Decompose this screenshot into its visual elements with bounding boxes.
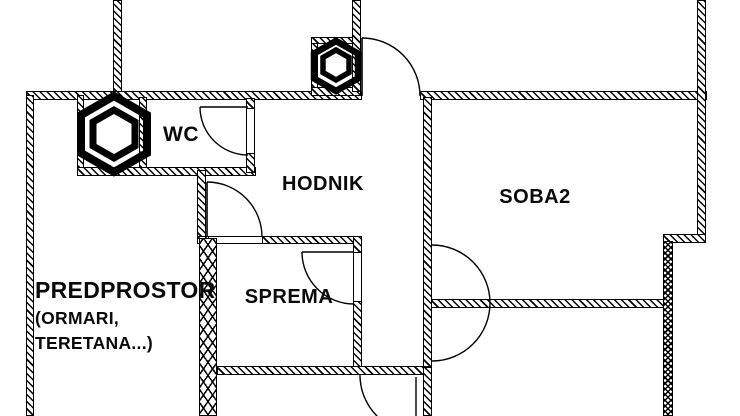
wall-topbox-left: [311, 37, 318, 92]
wall-right-exterior-upper: [697, 0, 706, 242]
wall-shaftbox-divider: [139, 97, 147, 173]
wall-top-left-vertical: [113, 0, 122, 96]
wall-sprema-right-upper: [353, 236, 362, 253]
wall-corridor-right: [423, 97, 432, 367]
sprema-right-door-opening: [353, 253, 362, 301]
wall-wc-right-lower: [246, 153, 255, 173]
predprostor-note-line1: (ORMARI,: [35, 306, 216, 331]
wall-sprema-bottom: [217, 366, 428, 375]
wall-corridor-right-bottom: [423, 367, 432, 416]
floor-plan: WC HODNIK SOBA2 SPREMA PREDPROSTOR (ORMA…: [0, 0, 740, 416]
room-label-soba2: SOBA2: [475, 186, 595, 209]
wall-shaftbox-left: [77, 95, 84, 173]
door-arc-bottom: [360, 375, 418, 416]
wall-wc-bottom: [77, 167, 256, 176]
wall-left-exterior: [26, 95, 34, 416]
wall-hodnik-left: [197, 170, 206, 240]
predprostor-title: PREDPROSTOR: [35, 278, 216, 303]
predprostor-note-line2: TERETANA...): [35, 331, 216, 356]
room-label-hodnik: HODNIK: [263, 173, 383, 196]
hexagon-shaft-icon-large: [81, 96, 147, 172]
wall-wc-right-upper: [246, 98, 255, 109]
room-label-wc: WC: [152, 123, 210, 147]
wall-sprema-top: [262, 236, 362, 244]
door-arc-top-entry: [362, 38, 420, 96]
door-arc-hodnik: [207, 182, 262, 237]
wall-top-right-horizontal: [420, 91, 707, 100]
wall-right-exterior-lower: [663, 241, 673, 416]
wall-sprema-right-lower: [353, 301, 362, 375]
wall-top-middle-vertical: [352, 0, 361, 92]
room-label-sprema: SPREMA: [228, 286, 350, 309]
wc-door-opening: [246, 109, 255, 153]
room-label-predprostor: PREDPROSTOR (ORMARI, TERETANA...): [35, 278, 216, 356]
wall-soba2-bottom: [431, 299, 669, 308]
